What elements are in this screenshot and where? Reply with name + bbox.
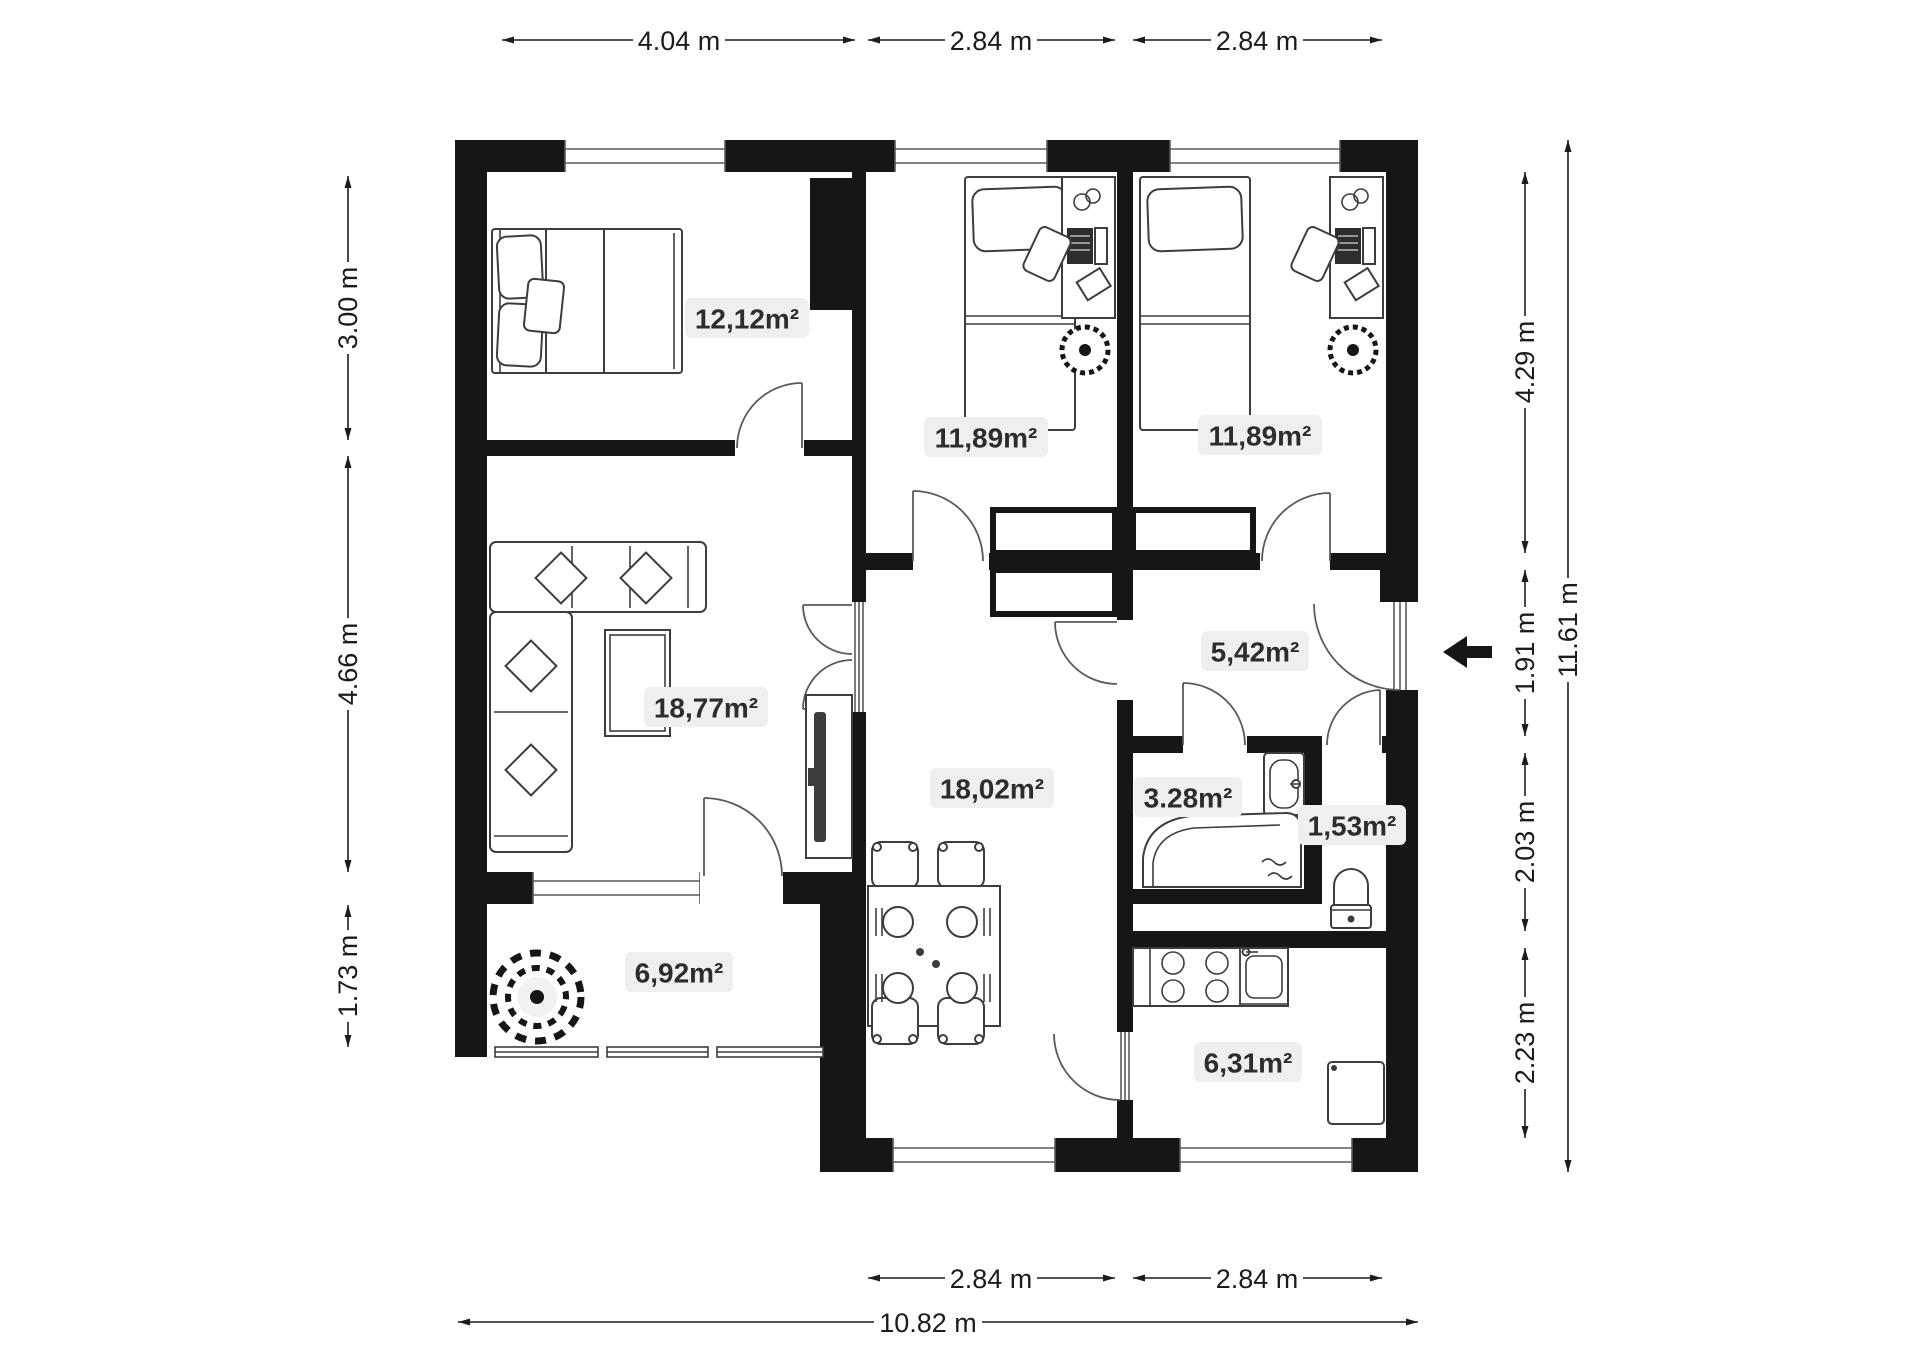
- room-label-bathroom: 3.28m²: [1144, 783, 1233, 814]
- entrance-arrow-icon: [1443, 636, 1492, 668]
- dim-top-3: 2.84 m: [1216, 26, 1299, 56]
- kitchen-dining-door: [1054, 1034, 1120, 1100]
- kids-room-2-furniture: [1133, 177, 1383, 553]
- kids-room-1-furniture: [965, 177, 1115, 553]
- window-kids-room-1: [895, 140, 1047, 172]
- hall-dining-door: [1055, 622, 1117, 684]
- dim-bottom-1: 2.84 m: [950, 1264, 1033, 1294]
- living-double-door: [803, 605, 852, 709]
- bathroom-door: [1183, 683, 1245, 745]
- laptop-keyboard: [1335, 228, 1361, 264]
- dim-bottom-2: 2.84 m: [1216, 1264, 1299, 1294]
- room-label-living-room: 18,77m²: [654, 693, 758, 724]
- room-label-kids-room-1: 11,89m²: [935, 423, 1038, 454]
- room-label-kids-room-2: 11,89m²: [1209, 421, 1312, 452]
- dim-bottom-total: 10.82 m: [879, 1308, 977, 1338]
- bathroom-sink: [1264, 753, 1304, 815]
- dining-chair: [872, 842, 918, 888]
- dim-right-4: 2.23 m: [1510, 1002, 1540, 1085]
- dim-right-3: 2.03 m: [1510, 801, 1540, 884]
- dining-set: [868, 842, 1000, 1044]
- dim-top-1: 4.04 m: [638, 26, 721, 56]
- terrace-door: [704, 798, 782, 876]
- wall-kitchen-north: [1117, 931, 1386, 948]
- dining-chair: [938, 842, 984, 888]
- toilet: [1331, 869, 1371, 928]
- dining-closet: [993, 570, 1115, 614]
- window-kitchen: [1180, 1138, 1352, 1172]
- dim-top-2: 2.84 m: [950, 26, 1033, 56]
- room-label-kitchen: 6,31m²: [1204, 1048, 1293, 1079]
- tv-screen: [814, 712, 826, 842]
- kids-room-1-closet: [993, 510, 1115, 553]
- bedroom-wardrobe: [810, 178, 852, 310]
- corner-bathtub: [1143, 813, 1301, 887]
- floor-plan-canvas: 4.04 m 2.84 m 2.84 m 3.00 m 4.66 m 1.73 …: [0, 0, 1920, 1358]
- room-label-bedroom: 12,12m²: [695, 304, 799, 335]
- kitchen-cabinet: [1328, 1062, 1384, 1124]
- floor-plan-page: 4.04 m 2.84 m 2.84 m 3.00 m 4.66 m 1.73 …: [0, 0, 1920, 1358]
- laptop-screen: [1363, 228, 1375, 264]
- plate: [947, 973, 977, 1003]
- dining-chair: [872, 998, 918, 1044]
- wall-terrace-east: [820, 904, 866, 1140]
- room-label-terrace: 6,92m²: [635, 958, 724, 989]
- plate: [883, 973, 913, 1003]
- window-dining: [893, 1138, 1055, 1172]
- window-bedroom: [565, 140, 725, 172]
- dim-left-1: 3.00 m: [333, 267, 363, 350]
- terrace-plant: [493, 953, 581, 1041]
- room-label-hallway: 5,42m²: [1211, 637, 1300, 668]
- tv-unit: [806, 695, 852, 858]
- dim-right-2: 1.91 m: [1510, 612, 1540, 695]
- kids-room-2-closet: [1133, 510, 1253, 553]
- laptop-keyboard: [1067, 228, 1093, 264]
- room-label-dining-room: 18,02m²: [940, 774, 1044, 805]
- terrace-railing: [495, 1047, 823, 1057]
- kids-room-2-door: [1262, 493, 1330, 561]
- bathroom-fixtures: [1143, 753, 1304, 887]
- plate: [883, 907, 913, 937]
- dim-right-total: 11.61 m: [1553, 582, 1583, 678]
- bedroom-door: [737, 383, 802, 448]
- dim-right-1: 4.29 m: [1510, 321, 1540, 404]
- dining-chair: [938, 998, 984, 1044]
- laptop-screen: [1095, 228, 1107, 264]
- room-label-wc: 1,53m²: [1308, 811, 1397, 842]
- window-living-terrace: [533, 872, 700, 904]
- kids-room-1-door: [913, 491, 983, 561]
- dim-left-3: 1.73 m: [333, 935, 363, 1018]
- wall-bedroom-south: [455, 440, 866, 456]
- kitchen-fixtures: [1133, 948, 1384, 1124]
- double-bed: [492, 229, 682, 373]
- wall-left: [455, 140, 487, 1057]
- window-kids-room-2: [1170, 140, 1340, 172]
- wall-bath-south: [1117, 889, 1322, 904]
- plate: [947, 907, 977, 937]
- dim-left-2: 4.66 m: [333, 623, 363, 706]
